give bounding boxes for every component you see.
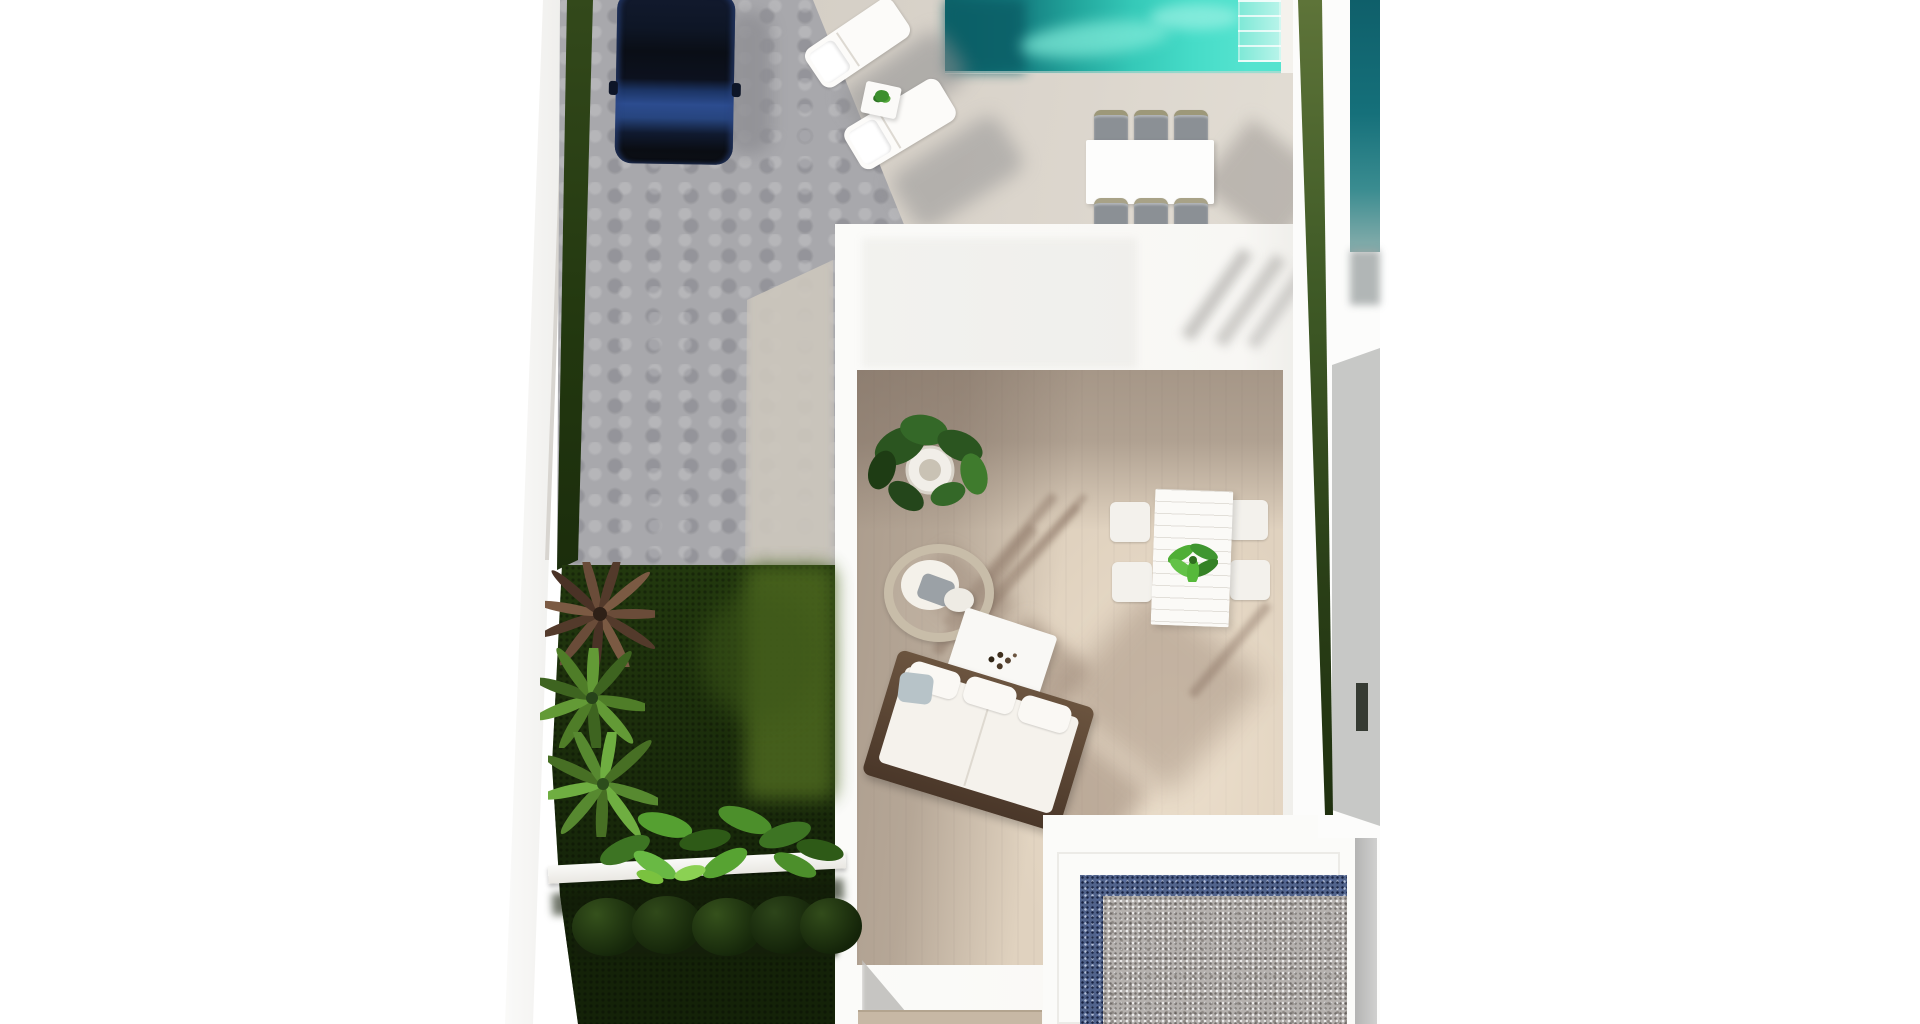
car-mirror-right <box>732 83 741 97</box>
table-centerpiece-plant <box>1168 538 1218 582</box>
neighbor-wall-shadow <box>1330 348 1380 826</box>
courtyard-chair <box>1112 562 1152 602</box>
porch-roof-shade <box>862 238 1137 368</box>
neighbor-vent <box>1356 683 1368 731</box>
neighbor-pool <box>1350 0 1380 252</box>
courtyard-chair <box>1228 500 1268 540</box>
pool-steps <box>1238 0 1281 62</box>
side-table-plant <box>874 89 890 104</box>
dining-table <box>1086 140 1214 204</box>
car-body <box>615 0 736 165</box>
pool-edge-line <box>945 71 1281 74</box>
courtyard-chair <box>1110 502 1150 542</box>
car-mirror-left <box>609 81 618 95</box>
aerial-villa-render <box>0 0 1920 1024</box>
lower-room-floor <box>858 1010 1042 1024</box>
sofa-accent-pillow <box>897 671 934 705</box>
hedge-ball <box>800 898 862 954</box>
car <box>615 0 736 165</box>
coffee-table-decor <box>997 651 1005 659</box>
lawn-moss-patch <box>700 590 820 720</box>
pool-wave-highlight-2 <box>1150 4 1240 30</box>
potted-fiddle-plant <box>862 408 1002 528</box>
gravel-fill <box>1103 896 1347 1024</box>
courtyard-chair <box>1230 560 1270 600</box>
neighbor-pool-shadow <box>1350 250 1380 305</box>
plant-pot-soil <box>919 459 941 481</box>
driveway-sunlit-patch <box>745 255 835 567</box>
gravel-block-side-face <box>1355 838 1377 1024</box>
banana-bush-cluster <box>595 765 845 895</box>
